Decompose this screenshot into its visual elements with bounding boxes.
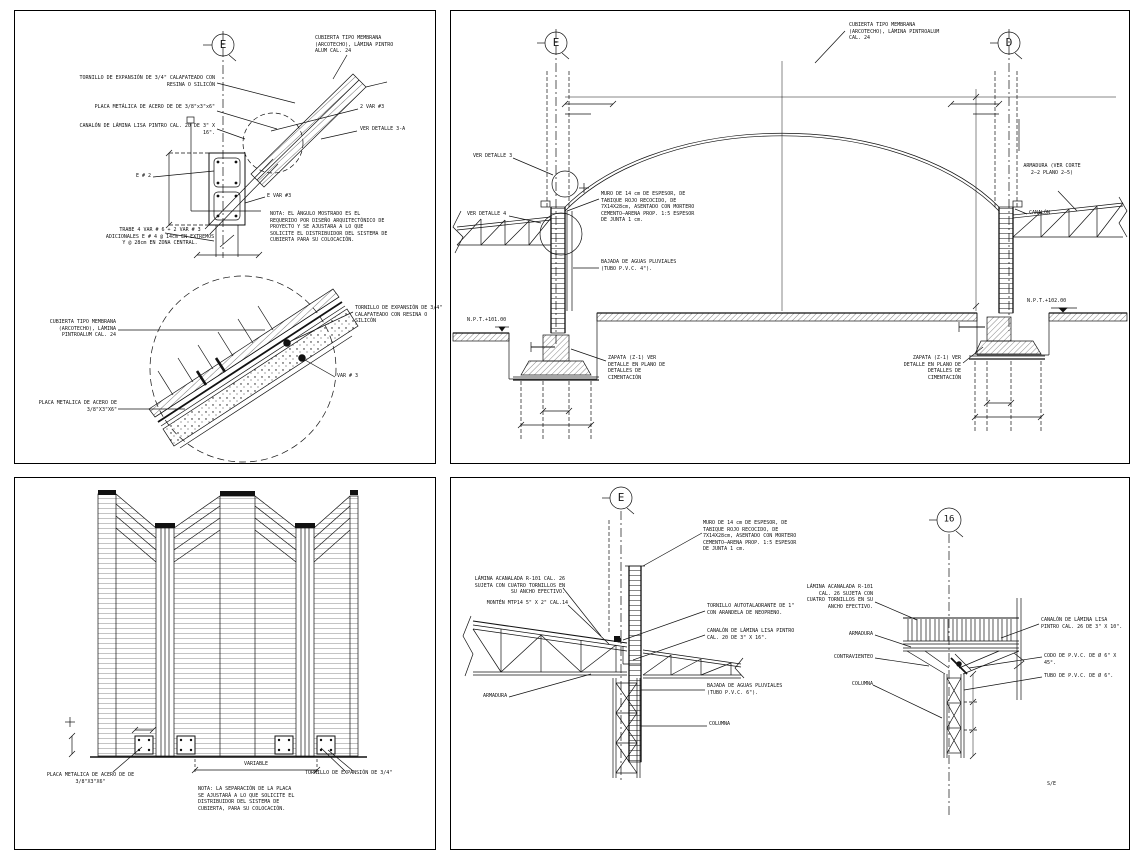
label-zapata-left: ZAPATA (Z-1) VER DETALLE EN PLANO DE DET… [608, 355, 676, 381]
label-tubo-pvc: TUBO DE P.V.C. DE Ø 6". [1044, 673, 1124, 680]
label-cubierta: CUBIERTA TIPO MEMBRANA (ARCOTECHO), LÁMI… [315, 35, 407, 55]
panel-elevation: PLACA METALICA DE ACERO DE DE 3/8"X3"X6"… [14, 477, 436, 850]
label-columna-r: COLUMNA [827, 681, 873, 688]
label-lamina-acanalada: LÁMINA ACANALADA R-101 CAL. 26 SUJETA CO… [469, 576, 565, 596]
label-var-3: VAR # 3 [337, 373, 377, 380]
label-ver-detalle-3: VER DETALLE 3 [473, 153, 535, 160]
label-placa-metalica: PLACA METÁLICA DE ACERO DE DE 3/8"x3"x6" [75, 104, 215, 111]
label-armadura: ARMADURA [483, 693, 525, 700]
label-placa-3a: PLACA METALICA DE ACERO DE 3/8"X3"X6" [35, 400, 117, 413]
label-tornillo-3a: TORNILLO DE EXPANSIÓN DE 3/4" CALAFATEAD… [355, 305, 450, 325]
label-tornillo-expansion: TORNILLO DE EXPANSIÓN DE 3/4" CALAFATEAD… [75, 75, 215, 88]
label-armadura-r: ARMADURA [831, 631, 873, 638]
panel-arch-section: E D CUBIERTA TIPO MEMBRANA (ARCOTECHO), … [450, 10, 1130, 464]
label-2-var-3: 2 VAR #3 [360, 104, 420, 111]
label-bajada-pluviales: BAJADA DE AGUAS PLUVIALES (TUBO P.V.C. 4… [601, 259, 689, 272]
label-codo-pvc: CODO DE P.V.C. DE Ø 6" X 45°. [1044, 653, 1128, 666]
label-contravienteo: CONTRAVIENTEO [819, 654, 873, 661]
label-nota-separacion: NOTA: LA SEPARACIÓN DE LA PLACA SE AJUST… [198, 786, 298, 812]
label-canalon-r: CANALÓN DE LÁMINA LISA PINTRO CAL. 26 DE… [1041, 617, 1125, 630]
label-ver-detalle-4: VER DETALLE 4 [467, 211, 529, 218]
label-zapata-right: ZAPATA (Z-1) VER DETALLE EN PLANO DE DET… [899, 355, 961, 381]
label-cubierta: CUBIERTA TIPO MEMBRANA (ARCOTECHO), LÁMI… [849, 22, 944, 42]
label-ver-detalle-3a: VER DETALLE 3-A [360, 126, 430, 133]
label-tornillo-autotaladrante: TORNILLO AUTOTALADRANTE DE 1" CON ARANDE… [707, 603, 799, 616]
arch-section-linework [451, 11, 1129, 463]
scale-note: S/E [1047, 781, 1077, 788]
label-trabe: TRABE 4 VAR # 6 + 2 VAR # 3 ADICIONALES … [105, 227, 215, 247]
cad-sheet: E CUBIERTA TIPO MEMBRANA (ARCOTECHO), LÁ… [0, 0, 1142, 863]
grid-bubble-e: E [220, 38, 227, 51]
label-placa-metalica: PLACA METALICA DE ACERO DE DE 3/8"X3"X6" [33, 772, 148, 785]
label-tornillo-expansion: TORNILLO DE EXPANSIÓN DE 3/4" [305, 770, 430, 777]
label-e-var-3: E VAR #3 [267, 193, 317, 200]
label-columna: COLUMNA [709, 721, 751, 728]
label-armadura: ARMADURA (VER CORTE 2–2 PLANO 2–5) [1023, 163, 1081, 176]
panel-detail-e: E CUBIERTA TIPO MEMBRANA (ARCOTECHO), LÁ… [14, 10, 436, 464]
label-npt-101: N.P.T.+101.00 [467, 317, 529, 324]
label-npt-102: N.P.T.+102.00 [1027, 298, 1089, 305]
label-monten: MONTÉN MTP14 5" X 2" CAL.14 [473, 600, 568, 607]
label-canalon: CANALÓN [1029, 210, 1071, 217]
grid-bubble-16: 16 [944, 515, 955, 525]
grid-bubble-e: E [553, 36, 560, 49]
label-canalon: CANALÓN DE LÁMINA LISA PINTRO CAL. 20 DE… [707, 628, 799, 641]
label-cubierta-3a: CUBIERTA TIPO MEMBRANA (ARCOTECHO), LÁMI… [31, 319, 116, 339]
panel-connection-details: E 16 MURO DE 14 cm DE ESPESOR, DE TABIQU… [450, 477, 1130, 850]
label-lamina-acanalada-r: LÁMINA ACANALADA R-101 CAL. 26 SUJETA CO… [801, 584, 873, 610]
label-estribo: E # 2 [115, 173, 151, 180]
label-muro: MURO DE 14 cm DE ESPESOR, DE TABIQUE ROJ… [703, 520, 799, 553]
label-nota-angulo: NOTA: EL ÁNGULO MOSTRADO ES EL REQUERIDO… [270, 211, 388, 244]
grid-bubble-d: D [1006, 36, 1013, 49]
label-bajada-pluviales: BAJADA DE AGUAS PLUVIALES (TUBO P.V.C. 6… [707, 683, 789, 696]
grid-bubble-e: E [618, 491, 625, 504]
label-variable-dim: VARIABLE [220, 761, 292, 768]
label-canalon: CANALÓN DE LÁMINA LISA PINTRO CAL. 20 DE… [75, 123, 215, 136]
label-muro: MURO DE 14 cm DE ESPESOR, DE TABIQUE ROJ… [601, 191, 701, 224]
